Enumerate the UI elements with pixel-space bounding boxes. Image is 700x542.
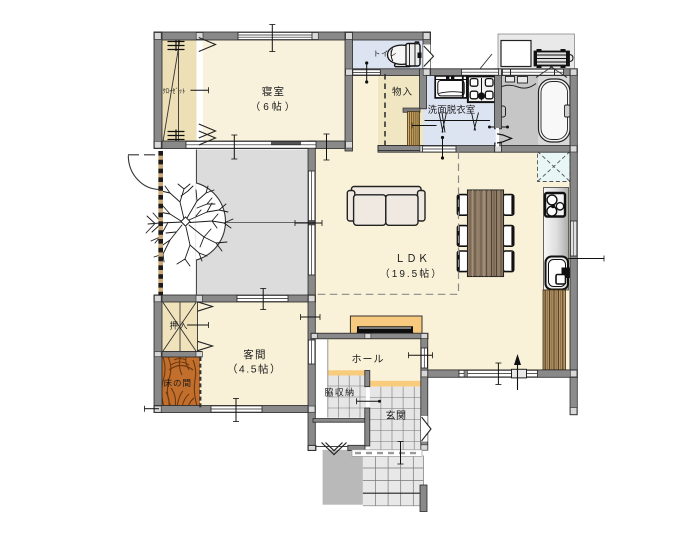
svg-text:（6帖）: （6帖） (250, 100, 298, 113)
svg-text:（4.5帖）: （4.5帖） (227, 363, 282, 376)
svg-text:ホール: ホール (352, 354, 385, 366)
svg-text:洗面脱衣室: 洗面脱衣室 (428, 104, 476, 116)
svg-text:脇収納: 脇収納 (325, 387, 356, 398)
svg-text:物入: 物入 (392, 86, 413, 98)
svg-text:ＬＤＫ: ＬＤＫ (395, 253, 430, 265)
svg-text:寝室: 寝室 (262, 85, 285, 98)
svg-text:ｸﾛｰｾﾞｯﾄ: ｸﾛｰｾﾞｯﾄ (163, 87, 186, 95)
svg-text:玄関: 玄関 (386, 409, 407, 422)
svg-text:押入: 押入 (170, 321, 189, 331)
svg-text:床の間: 床の間 (164, 378, 193, 388)
svg-text:客間: 客間 (243, 348, 266, 361)
svg-text:トイレ: トイレ (373, 49, 397, 58)
svg-text:（19.5帖）: （19.5帖） (380, 267, 443, 280)
